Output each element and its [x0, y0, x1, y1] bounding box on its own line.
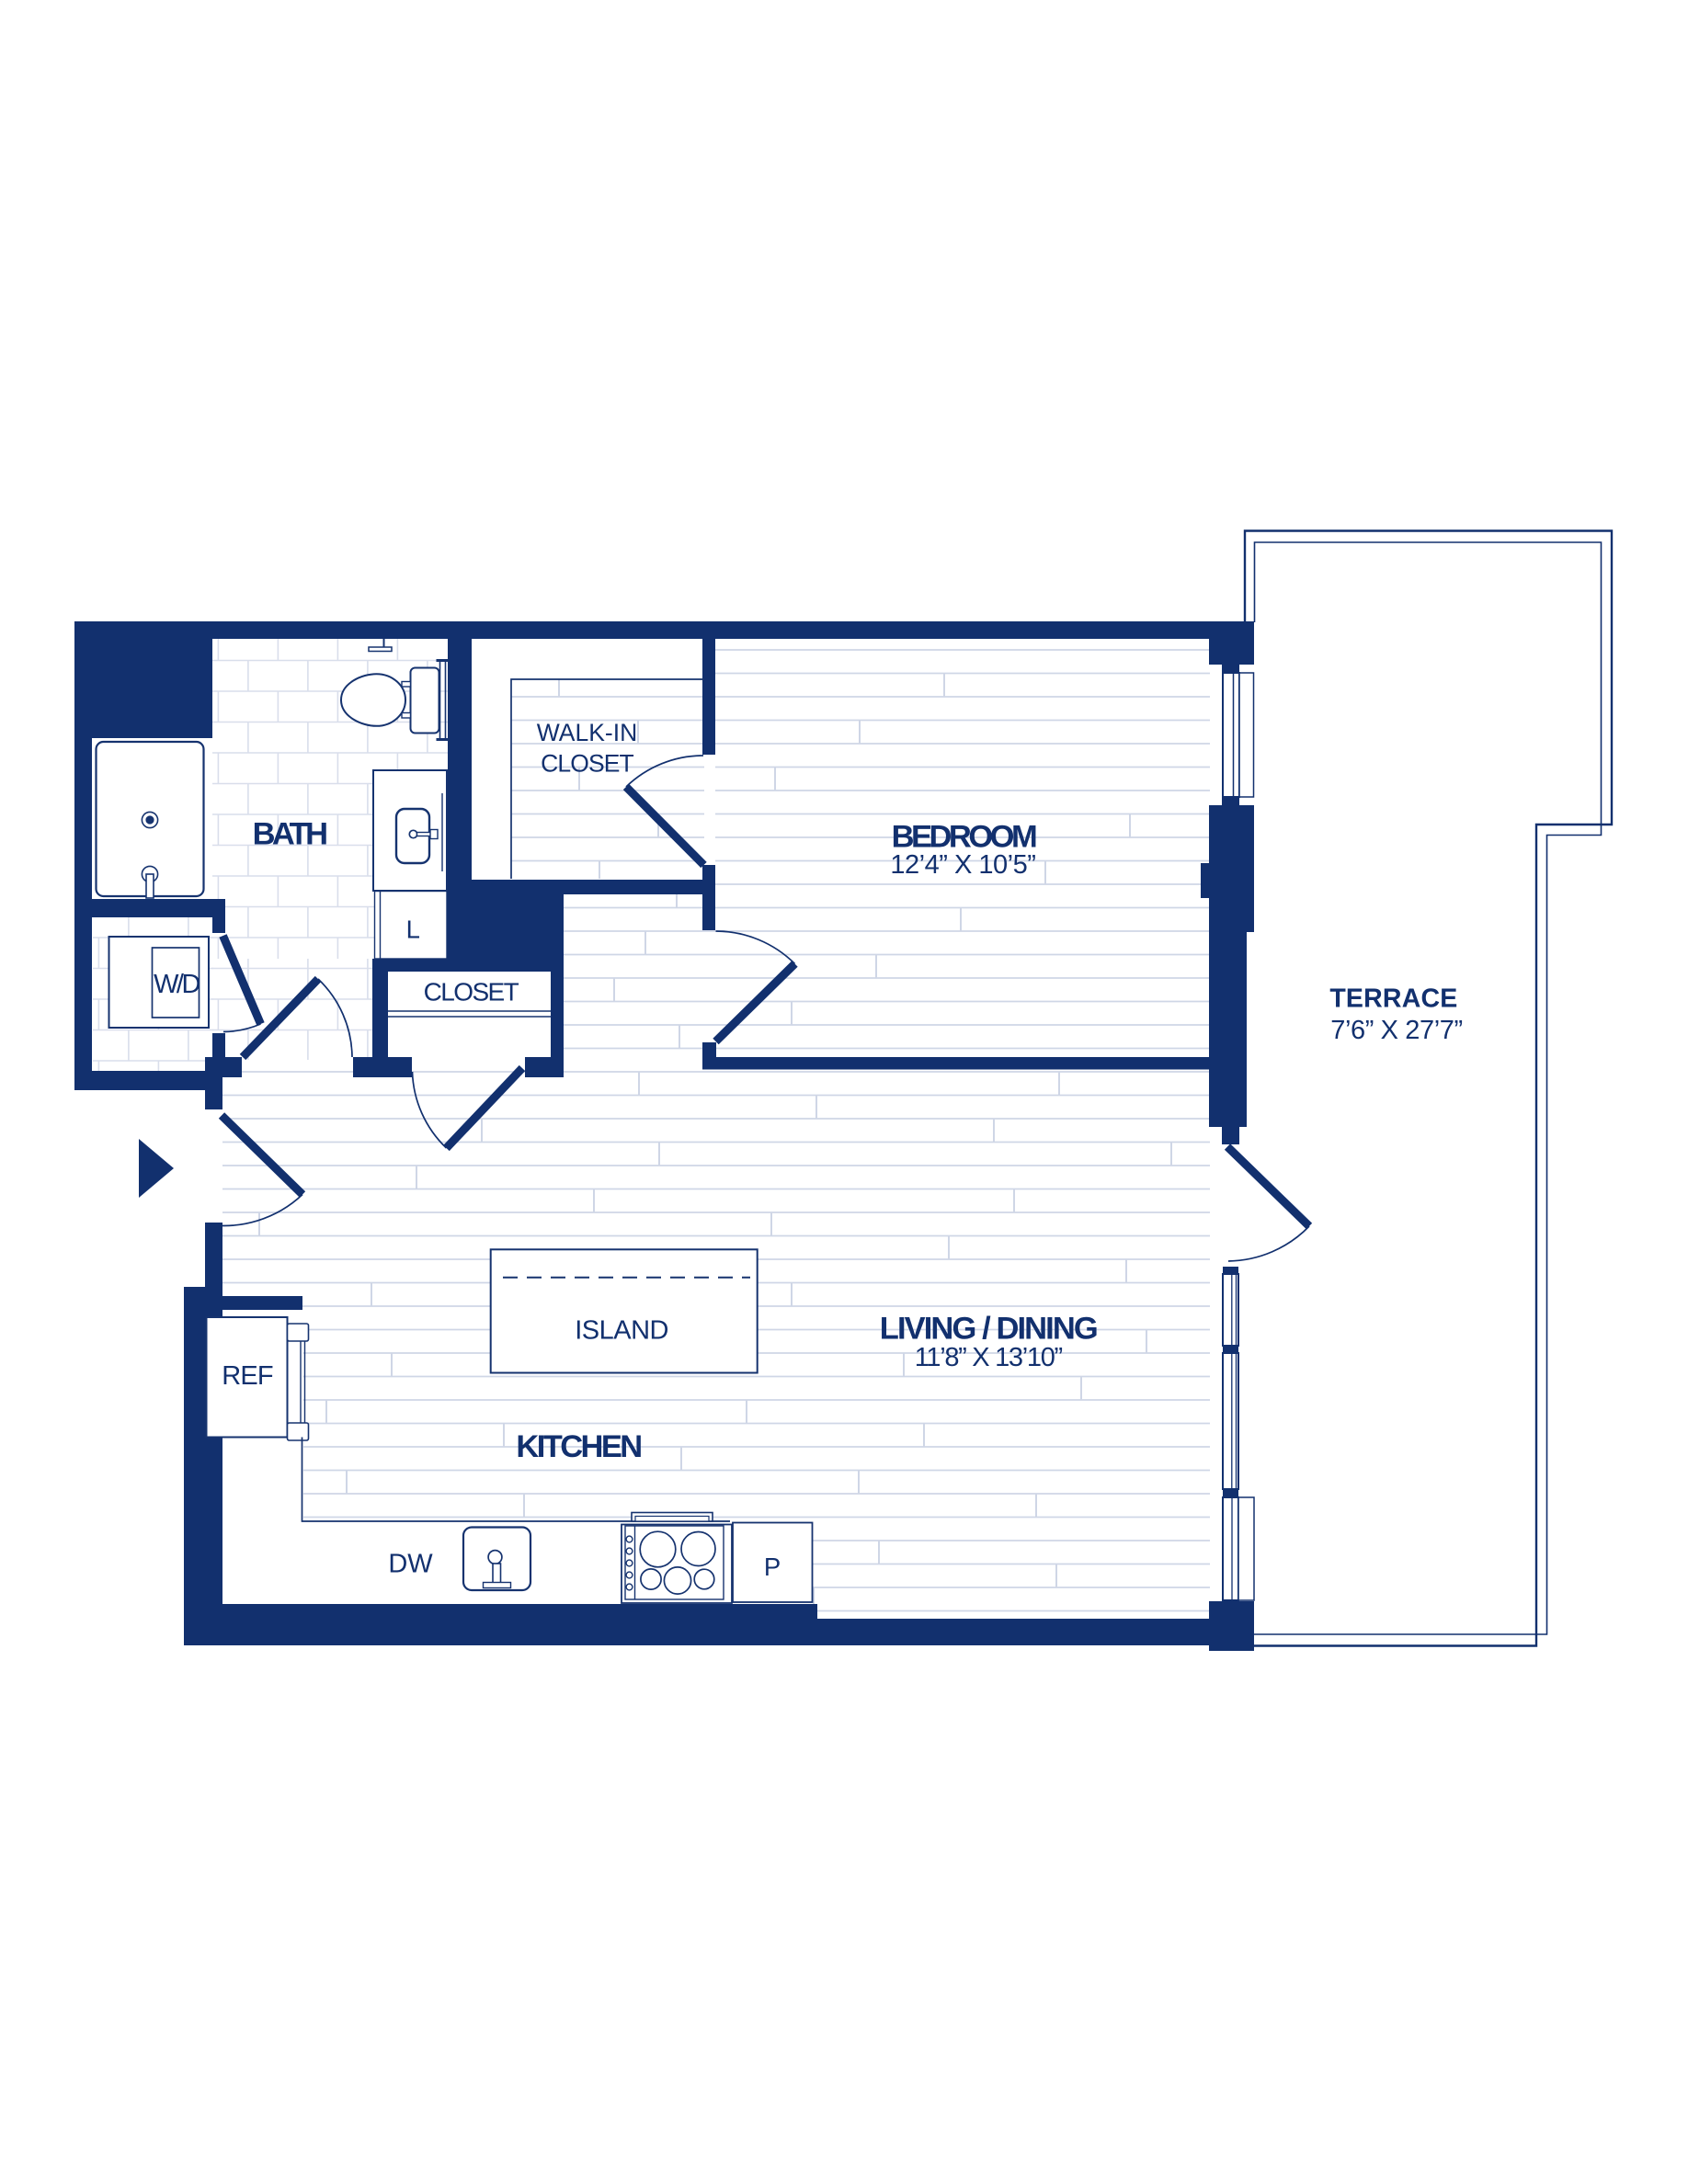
svg-text:REF: REF: [222, 1361, 273, 1391]
svg-text:CLOSET: CLOSET: [541, 749, 633, 777]
svg-text:L: L: [406, 915, 420, 943]
svg-text:P: P: [764, 1553, 781, 1581]
svg-text:LIVING / DINING: LIVING / DINING: [880, 1312, 1097, 1347]
svg-text:ISLAND: ISLAND: [575, 1316, 668, 1346]
svg-text:BEDROOM: BEDROOM: [892, 820, 1036, 855]
svg-text:W/D: W/D: [154, 970, 200, 999]
svg-text:12’4” X 10’5”: 12’4” X 10’5”: [890, 850, 1035, 880]
svg-text:TERRACE: TERRACE: [1329, 984, 1457, 1014]
svg-text:7’6” X 27’7”: 7’6” X 27’7”: [1330, 1016, 1463, 1045]
svg-text:CLOSET: CLOSET: [424, 977, 519, 1006]
svg-text:WALK-IN: WALK-IN: [537, 719, 637, 746]
svg-text:BATH: BATH: [253, 817, 327, 852]
svg-text:DW: DW: [388, 1550, 433, 1579]
svg-text:11’8” X 13’10”: 11’8” X 13’10”: [915, 1343, 1063, 1372]
svg-text:KITCHEN: KITCHEN: [516, 1429, 641, 1464]
